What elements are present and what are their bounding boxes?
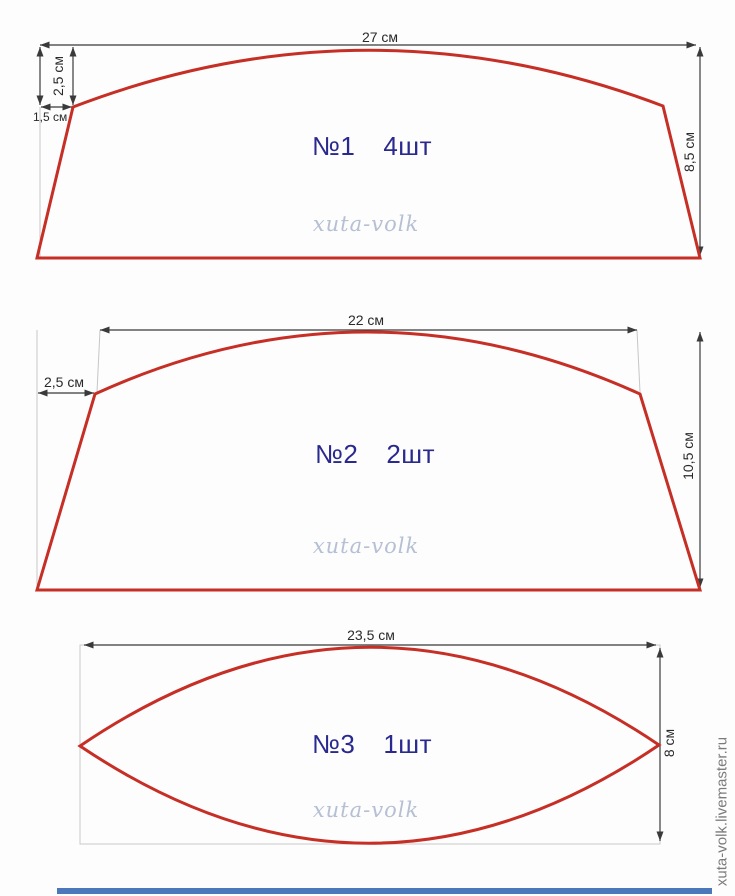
piece1-notch-width-label: 1,5 см [33,110,67,124]
piece1-side-height-label: 8,5 см [681,122,697,182]
piece1-watermark: xuta-volk [286,212,446,236]
piece3-watermark: xuta-volk [286,798,446,822]
piece2-side-height-label: 10,5 см [680,421,696,491]
piece2-number: №2 [315,439,358,470]
piece3-quantity: 1шт [383,729,432,760]
piece3-height-label: 8 см [661,718,677,768]
piece1-label: №1 4шт [262,131,482,162]
piece2-top-width-label: 22 см [326,312,406,328]
piece1-number: №1 [312,131,355,162]
piece2-watermark: xuta-volk [286,534,446,558]
piece3-label: №3 1шт [262,729,482,760]
piece3-width-label: 23,5 см [321,627,421,643]
site-credit-text: xuta-volk.livemaster.ru [714,722,731,896]
footer-bar [57,888,712,894]
sewing-pattern-sheet: 27 см 2,5 см 1,5 см 8,5 см №1 4шт xuta-v… [0,0,735,896]
piece2-label: №2 2шт [265,439,485,470]
piece1-top-width-label: 27 см [340,29,420,45]
piece1-notch-height-label: 2,5 см [50,46,66,106]
piece3-number: №3 [312,729,355,760]
piece2-quantity: 2шт [386,439,435,470]
piece1-quantity: 4шт [383,131,432,162]
piece2-right-kink-extension-line [637,330,640,392]
piece2-notch-width-label: 2,5 см [30,374,98,390]
